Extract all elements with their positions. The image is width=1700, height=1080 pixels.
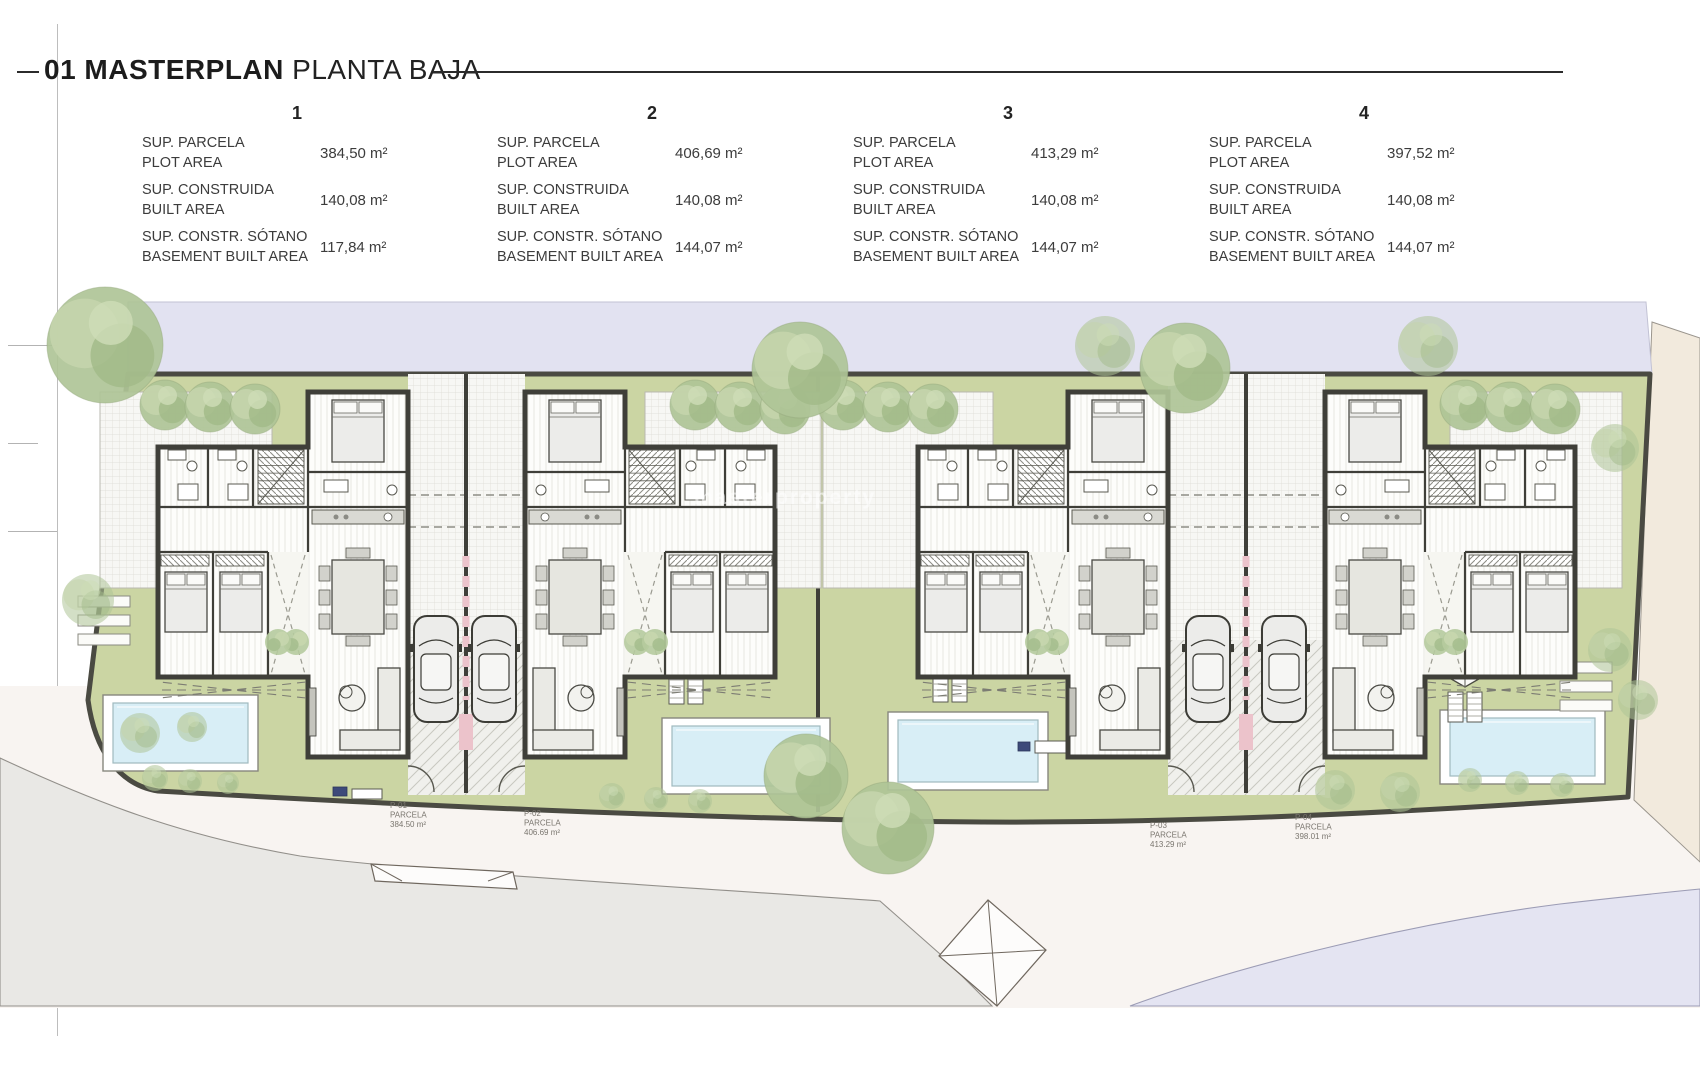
tree: [752, 322, 848, 418]
tree: [1505, 771, 1529, 795]
row-value: 144,07 m²: [675, 239, 795, 256]
row-label-en: BASEMENT BUILT AREA: [853, 249, 1019, 265]
tree: [644, 787, 668, 811]
area-table-unit-4: 4 SUP. PARCELAPLOT AREA397,52 m² SUP. CO…: [1209, 103, 1519, 274]
tree: [140, 380, 190, 430]
tree: [185, 382, 235, 432]
table-row: SUP. PARCELAPLOT AREA413,29 m²: [853, 133, 1163, 173]
row-label-en: BASEMENT BUILT AREA: [497, 249, 663, 265]
row-label-es: SUP. CONSTRUIDA: [853, 182, 985, 198]
table-row: SUP. PARCELAPLOT AREA406,69 m²: [497, 133, 807, 173]
row-label-en: BUILT AREA: [1209, 202, 1291, 218]
tree: [842, 782, 934, 874]
tree: [177, 712, 207, 742]
table-row: SUP. CONSTRUIDABUILT AREA140,08 m²: [497, 180, 807, 220]
row-value: 144,07 m²: [1387, 239, 1507, 256]
watermark: masterproperty: [694, 486, 876, 509]
tree: [1380, 772, 1420, 812]
row-label-es: SUP. PARCELA: [1209, 135, 1312, 151]
area-table-unit-2: 2 SUP. PARCELAPLOT AREA406,69 m² SUP. CO…: [497, 103, 807, 274]
row-value: 144,07 m²: [1031, 239, 1151, 256]
title-regular: PLANTA BAJA: [292, 54, 481, 85]
row-label-es: SUP. CONSTR. SÓTANO: [853, 229, 1018, 245]
tree: [1530, 384, 1580, 434]
unit-number: 1: [142, 103, 452, 124]
row-value: 140,08 m²: [320, 192, 440, 209]
area-table-unit-1: 1 SUP. PARCELAPLOT AREA384,50 m² SUP. CO…: [142, 103, 452, 274]
title-rule-left: [17, 71, 39, 73]
table-row: SUP. CONSTR. SÓTANOBASEMENT BUILT AREA14…: [497, 227, 807, 267]
tree: [1485, 382, 1535, 432]
tree: [142, 765, 168, 791]
row-label-es: SUP. CONSTRUIDA: [142, 182, 274, 198]
row-label-es: SUP. PARCELA: [853, 135, 956, 151]
row-value: 397,52 m²: [1387, 145, 1507, 162]
row-label-en: BUILT AREA: [142, 202, 224, 218]
car-2: [468, 616, 520, 722]
page: { "title": { "number_bold": "01 MASTERPL…: [0, 0, 1700, 1080]
tree: [764, 734, 848, 818]
row-label-en: PLOT AREA: [142, 155, 222, 171]
tree: [47, 287, 163, 403]
row-label-es: SUP. PARCELA: [497, 135, 600, 151]
tree: [217, 772, 239, 794]
row-label-es: SUP. CONSTR. SÓTANO: [497, 229, 662, 245]
row-value: 413,29 m²: [1031, 145, 1151, 162]
row-label-en: BASEMENT BUILT AREA: [1209, 249, 1375, 265]
table-row: SUP. CONSTR. SÓTANOBASEMENT BUILT AREA11…: [142, 227, 452, 267]
tree: [1075, 316, 1135, 376]
table-row: SUP. CONSTR. SÓTANOBASEMENT BUILT AREA14…: [1209, 227, 1519, 267]
row-label-en: BASEMENT BUILT AREA: [142, 249, 308, 265]
tree: [120, 713, 160, 753]
page-title: 01 MASTERPLAN PLANTA BAJA: [44, 54, 481, 86]
unit-number: 3: [853, 103, 1163, 124]
row-label-en: PLOT AREA: [497, 155, 577, 171]
table-row: SUP. CONSTRUIDABUILT AREA140,08 m²: [142, 180, 452, 220]
unit-number: 2: [497, 103, 807, 124]
tree: [1618, 680, 1658, 720]
tree: [908, 384, 958, 434]
row-label-es: SUP. PARCELA: [142, 135, 245, 151]
table-row: SUP. CONSTR. SÓTANOBASEMENT BUILT AREA14…: [853, 227, 1163, 267]
tree: [230, 384, 280, 434]
title-bold: 01 MASTERPLAN: [44, 54, 284, 85]
row-value: 406,69 m²: [675, 145, 795, 162]
row-label-en: PLOT AREA: [1209, 155, 1289, 171]
area-table-unit-3: 3 SUP. PARCELAPLOT AREA413,29 m² SUP. CO…: [853, 103, 1163, 274]
tree: [670, 380, 720, 430]
tree: [688, 789, 712, 813]
driveway-1: [408, 374, 525, 795]
table-row: SUP. CONSTRUIDABUILT AREA140,08 m²: [1209, 180, 1519, 220]
car-1: [410, 616, 462, 722]
table-row: SUP. PARCELAPLOT AREA397,52 m²: [1209, 133, 1519, 173]
driveway-2: [1168, 374, 1325, 795]
tree: [1315, 770, 1355, 810]
row-label-en: PLOT AREA: [853, 155, 933, 171]
tree: [1550, 773, 1574, 797]
row-label-en: BUILT AREA: [497, 202, 579, 218]
table-row: SUP. PARCELAPLOT AREA384,50 m²: [142, 133, 452, 173]
row-label-es: SUP. CONSTRUIDA: [1209, 182, 1341, 198]
row-label-en: BUILT AREA: [853, 202, 935, 218]
tree: [1398, 316, 1458, 376]
row-value: 140,08 m²: [1387, 192, 1507, 209]
tree: [1458, 768, 1482, 792]
tree: [863, 382, 913, 432]
row-value: 384,50 m²: [320, 145, 440, 162]
title-bar: 01 MASTERPLAN PLANTA BAJA: [0, 54, 1700, 90]
row-value: 140,08 m²: [675, 192, 795, 209]
row-label-es: SUP. CONSTR. SÓTANO: [1209, 229, 1374, 245]
car-3: [1182, 616, 1234, 722]
car-4: [1258, 616, 1310, 722]
tree: [178, 769, 202, 793]
table-row: SUP. CONSTRUIDABUILT AREA140,08 m²: [853, 180, 1163, 220]
tree: [1440, 380, 1490, 430]
tree: [1588, 628, 1632, 672]
tree: [62, 574, 114, 626]
svg-text:masterproperty: masterproperty: [694, 486, 876, 509]
row-label-es: SUP. CONSTRUIDA: [497, 182, 629, 198]
row-value: 117,84 m²: [320, 239, 440, 256]
unit-number: 4: [1209, 103, 1519, 124]
title-rule-right: [433, 71, 1563, 73]
row-label-es: SUP. CONSTR. SÓTANO: [142, 229, 307, 245]
tree: [599, 783, 625, 809]
tree: [1140, 323, 1230, 413]
tree: [1591, 424, 1639, 472]
row-value: 140,08 m²: [1031, 192, 1151, 209]
